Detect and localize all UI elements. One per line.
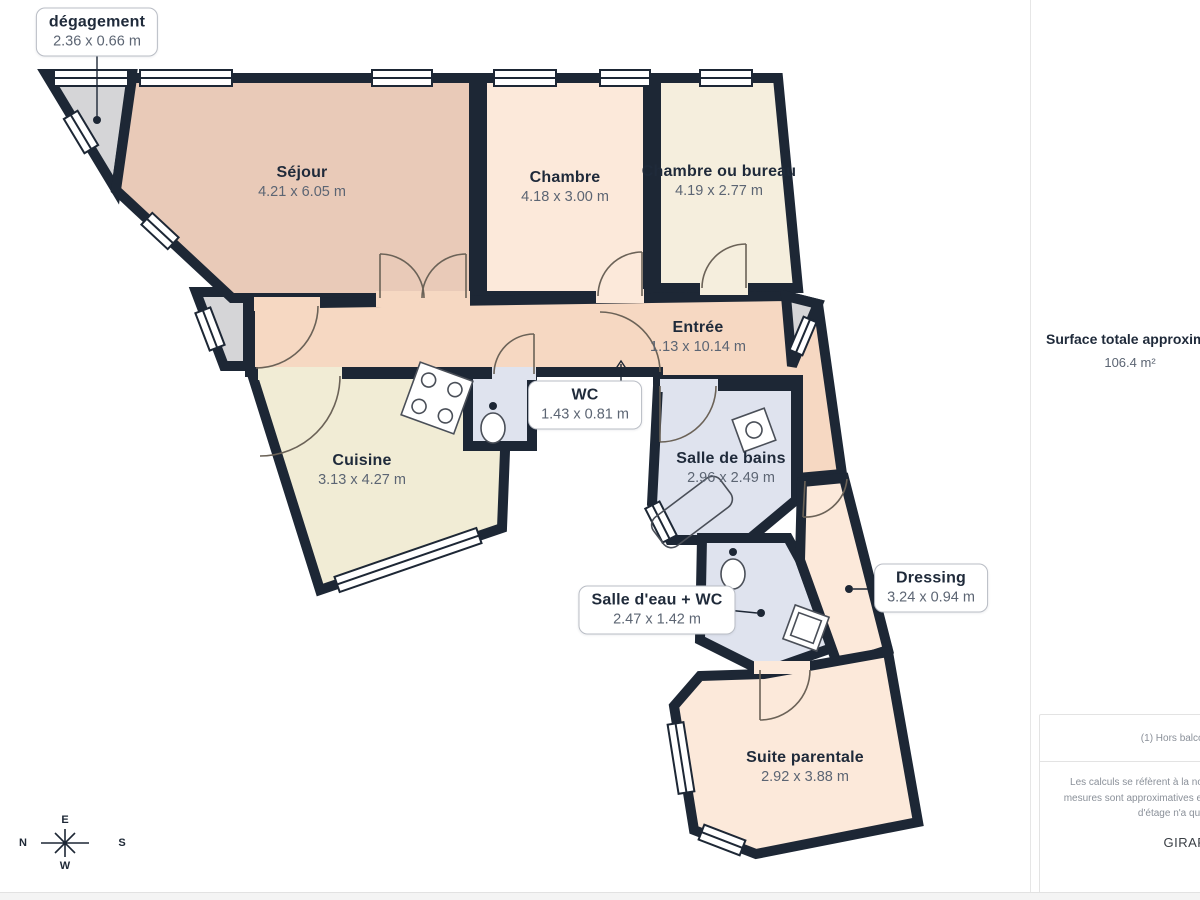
floorplan-canvas	[0, 0, 1030, 900]
brand-name: GIRAFFE	[1163, 835, 1200, 850]
notes-card: (1) Hors balcons et terrasses Les calcul…	[1039, 714, 1200, 894]
room-chambre-bureau-area	[656, 78, 798, 288]
bottom-bar	[0, 892, 1200, 900]
compass-east-label: E	[61, 814, 68, 826]
room-chambre-area	[482, 78, 648, 296]
disclaimer-paragraph: Les calculs se réfèrent à la norme RICS …	[1064, 777, 1200, 819]
giraffe360-logo: GIRAFFE360	[1050, 833, 1200, 853]
compass-icon	[41, 829, 89, 857]
compass-north-label: N	[19, 837, 27, 849]
room-suite-area	[674, 652, 918, 854]
compass-south-label: S	[118, 837, 125, 849]
floorplan-page: dégagement 2.36 x 0.66 m Séjour 4.21 x 6…	[0, 0, 1200, 900]
room-sejour-area	[116, 78, 474, 298]
surface-total-title: Surface totale approximative	[1046, 331, 1200, 347]
compass-west-label: W	[60, 860, 70, 872]
footnote-text: (1) Hors balcons et terrasses	[1040, 715, 1200, 762]
disclaimer-text: Les calculs se réfèrent à la norme RICS …	[1040, 762, 1200, 853]
room-salle-de-bains-area	[652, 386, 796, 540]
sidebar-divider	[1030, 0, 1031, 893]
surface-total-value: 106.4 m²	[1040, 355, 1200, 370]
